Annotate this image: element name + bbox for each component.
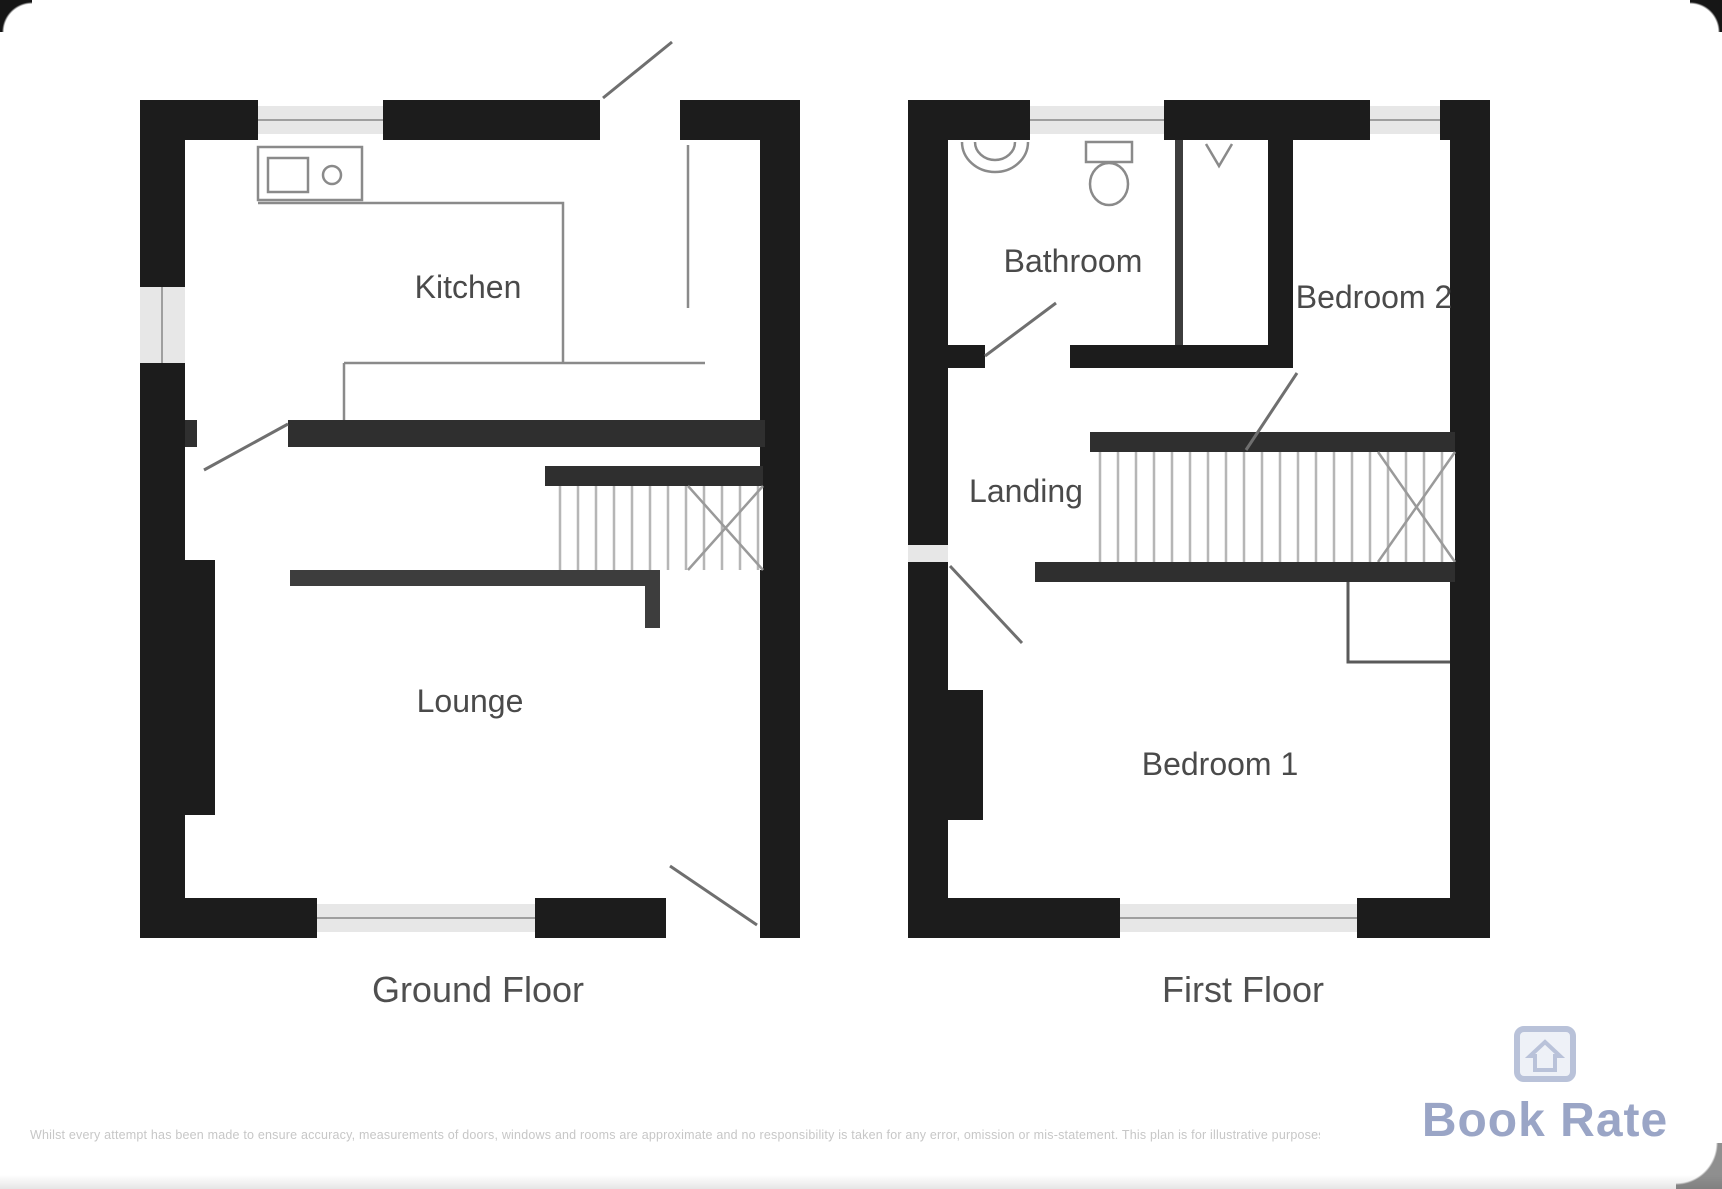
bedroom2-dividing-wall — [1268, 140, 1293, 368]
floorplan-page: Kitchen Lounge Ground Floor — [0, 0, 1722, 1189]
page-bottom-edge — [0, 1175, 1722, 1189]
bathroom-partition — [1175, 140, 1183, 345]
first-floor-caption: First Floor — [1162, 969, 1324, 1010]
toilet-cistern — [1086, 142, 1132, 162]
page-corner-top-right — [1690, 0, 1722, 32]
brand-logo: Book Rate — [1395, 1026, 1695, 1148]
divider-wall — [288, 420, 765, 447]
bathroom-wall-stub — [945, 345, 985, 368]
bathroom-door-swing — [985, 303, 1056, 356]
disclaimer-text: Whilst every attempt has been made to en… — [30, 1128, 1320, 1142]
outer-wall-top-2 — [383, 100, 600, 140]
floorplan-drawing: Kitchen Lounge Ground Floor — [0, 0, 1722, 1189]
outer-wall-top-1 — [908, 100, 1030, 140]
front-door-swing — [670, 866, 757, 925]
cupboard-mark — [1206, 144, 1232, 166]
room-label-lounge: Lounge — [417, 683, 524, 719]
bathroom-bottom-wall — [1070, 345, 1293, 368]
bedroom1-door-swing — [950, 566, 1022, 643]
ground-floor-caption: Ground Floor — [372, 969, 584, 1010]
first-floor-plan: Bathroom Bedroom 2 Landing Bedroom 1 Fir… — [908, 100, 1490, 1010]
outer-wall-right — [1450, 100, 1490, 938]
divider-wall-stub — [185, 420, 197, 447]
outer-wall-top-2 — [1164, 100, 1370, 140]
wall-left-break — [908, 545, 948, 562]
room-label-bathroom: Bathroom — [1004, 243, 1143, 279]
outer-wall-bottom-2 — [1357, 898, 1450, 938]
outer-wall-left-upper — [908, 100, 948, 545]
stairs-bottom-wall — [1035, 562, 1455, 582]
toilet-icon — [1090, 163, 1128, 205]
stairs-treads — [545, 486, 763, 570]
kitchen-door-swing — [204, 424, 288, 470]
house-icon — [1514, 1026, 1576, 1082]
back-door-swing — [603, 42, 672, 98]
stairs-treads — [1090, 452, 1455, 562]
stairs-bulkhead — [1348, 582, 1450, 662]
sink-bowl — [268, 158, 308, 192]
basin-bowl — [975, 142, 1015, 160]
brand-logo-text: Book Rate — [1395, 1093, 1695, 1148]
stairs-top-wall — [545, 466, 763, 486]
outer-wall-bottom-1 — [140, 898, 317, 938]
stairs-bottom-wall — [290, 570, 660, 586]
chimney-breast — [908, 690, 983, 820]
room-label-landing: Landing — [969, 473, 1083, 509]
room-label-bedroom2: Bedroom 2 — [1296, 279, 1453, 315]
sink-tap — [323, 166, 341, 184]
outer-wall-bottom-2 — [535, 898, 666, 938]
outer-wall-right — [760, 100, 800, 938]
outer-wall-top-1 — [140, 100, 258, 140]
room-label-kitchen: Kitchen — [415, 269, 522, 305]
ground-floor-plan: Kitchen Lounge Ground Floor — [140, 42, 800, 1010]
page-corner-top-left — [0, 0, 32, 32]
outer-wall-bottom-1 — [908, 898, 1120, 938]
basin-icon — [962, 142, 1028, 172]
stairs-top-wall — [1090, 432, 1455, 452]
room-label-bedroom1: Bedroom 1 — [1142, 746, 1299, 782]
chimney-breast — [140, 560, 215, 815]
stairs-bottom-stub — [645, 586, 660, 628]
